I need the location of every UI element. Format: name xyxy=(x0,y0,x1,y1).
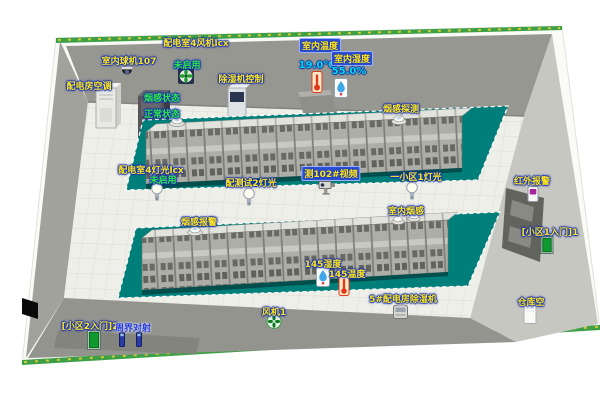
smoke-detector-icon[interactable] xyxy=(391,114,407,125)
thermometer-icon[interactable] xyxy=(312,71,323,93)
humidity-icon[interactable] xyxy=(334,78,348,98)
label-infrared: 红外报警 xyxy=(514,174,550,187)
label-temp145: 145温度 xyxy=(329,267,366,280)
label-perimeter: 周界对射 xyxy=(115,321,151,334)
label-gate1: [小区1入门]1 xyxy=(522,225,579,238)
status-smoke-state: 正常状态 xyxy=(144,107,180,120)
value-indoor-hum: 55.0% xyxy=(332,66,367,77)
bulb-icon[interactable] xyxy=(243,187,255,207)
infrared-alarm-icon[interactable] xyxy=(528,186,539,202)
label-indoor-smoke: 室内烟感 xyxy=(388,204,424,217)
door-icon[interactable] xyxy=(87,330,101,350)
label-light-area1: 一小区1灯光 xyxy=(390,170,441,183)
label-smoke-probe: 烟感探测 xyxy=(383,102,419,115)
label-indoor-hum[interactable]: 室内湿度 xyxy=(331,51,373,66)
dome-camera-icon[interactable] xyxy=(120,66,135,79)
scada-3d-room-view: 配电室4风机lcx 未启用 室内球机107 配电房空调 除湿机控制 室内温度 1… xyxy=(0,0,600,400)
status-fan4: 未启用 xyxy=(173,58,200,71)
label-storage: 仓库空 xyxy=(517,295,544,308)
status-light4: 未启用 xyxy=(149,173,176,186)
label-fan1: 风机1 xyxy=(262,305,286,318)
label-smoke-state: 烟感状态 xyxy=(144,91,180,104)
beam-post-icon[interactable] xyxy=(136,332,142,347)
label-dehum5: 5#配电房除湿机 xyxy=(369,292,437,305)
value-indoor-temp: 19.0℃ xyxy=(299,60,336,71)
label-smoke-alarm: 烟感报警 xyxy=(181,215,217,228)
label-dome-camera: 室内球机107 xyxy=(102,54,157,67)
door-icon[interactable] xyxy=(541,236,554,254)
label-fan4: 配电室4风机lcx xyxy=(163,36,229,49)
label-gate2: [小区2入门]2 xyxy=(62,319,119,332)
bulb-icon[interactable] xyxy=(406,181,418,201)
box-camera-icon[interactable] xyxy=(318,179,336,195)
label-dehum-ctrl: 除湿机控制 xyxy=(218,72,263,85)
label-cam102[interactable]: 测102#视频 xyxy=(301,166,360,181)
label-ac: 配电房空调 xyxy=(66,79,111,92)
dehumidifier-icon[interactable] xyxy=(392,303,410,321)
label-light-test2: 配测试2灯光 xyxy=(225,176,276,189)
beam-post-icon[interactable] xyxy=(119,332,125,347)
